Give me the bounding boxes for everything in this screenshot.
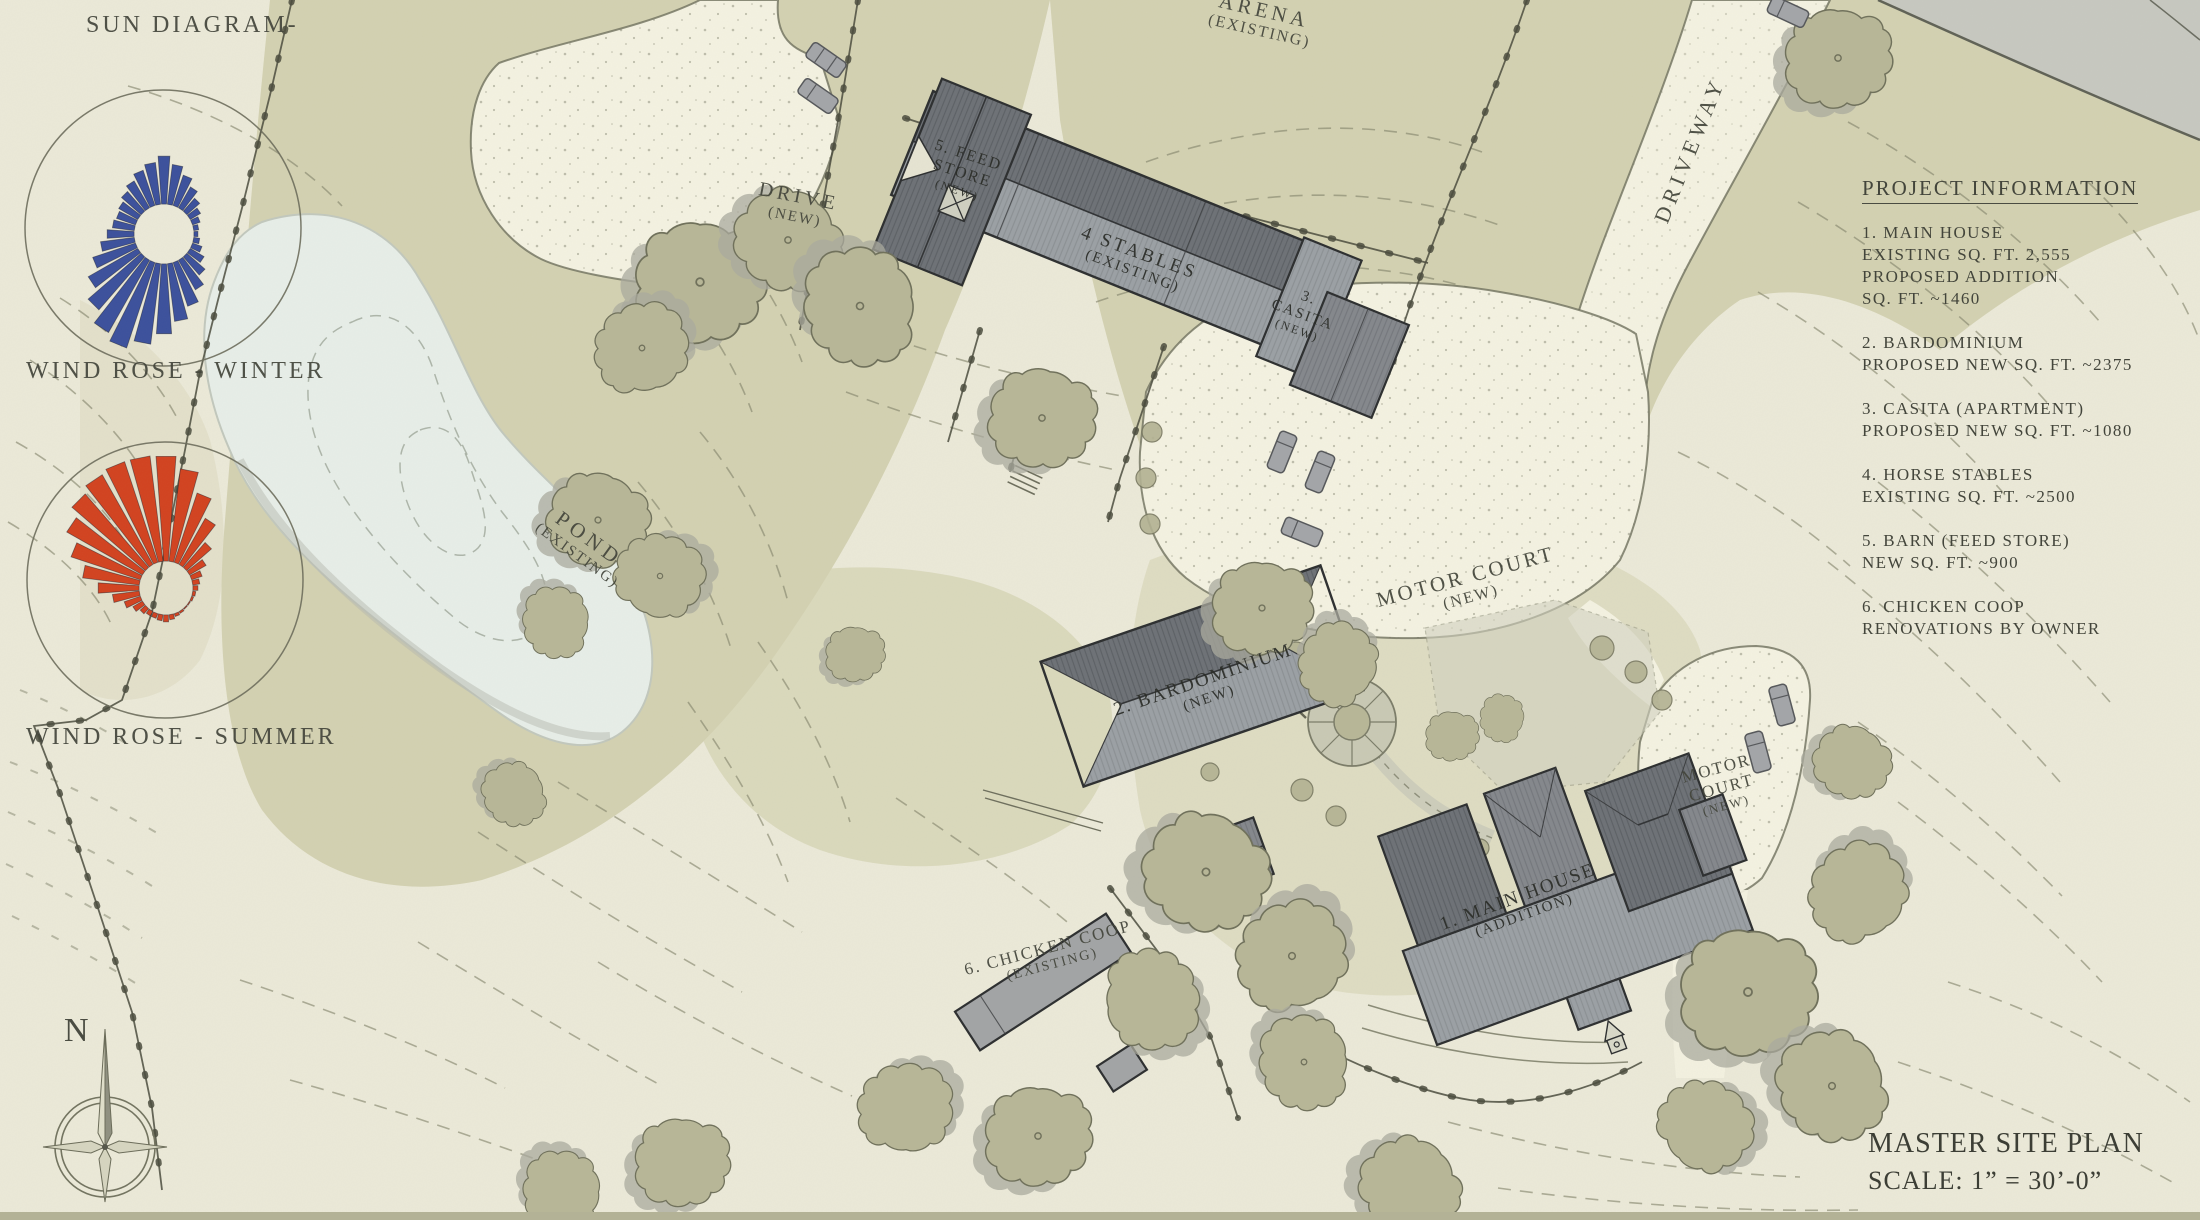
project-info-item-chicken-coop: 6. CHICKEN COOP RENOVATIONS BY OWNER: [1862, 596, 2192, 640]
project-info-heading: PROJECT INFORMATION: [1862, 176, 2138, 204]
wind-rose-summer-label: WIND ROSE - SUMMER: [26, 724, 337, 751]
project-info-item-casita: 3. CASITA (APARTMENT) PROPOSED NEW SQ. F…: [1862, 398, 2192, 442]
wind-rose-winter-label: WIND ROSE - WINTER: [26, 358, 326, 385]
title-block: MASTER SITE PLAN SCALE: 1” = 30’-0”: [1868, 1128, 2144, 1196]
project-info-item-stables: 4. HORSE STABLES EXISTING SQ. FT. ~2500: [1862, 464, 2192, 508]
master-site-plan: SUN DIAGRAM- WIND ROSE - WINTER WIND ROS…: [0, 0, 2200, 1220]
page-title: MASTER SITE PLAN: [1868, 1128, 2144, 1160]
page-scale: SCALE: 1” = 30’-0”: [1868, 1166, 2144, 1196]
project-info-panel: PROJECT INFORMATION 1. MAIN HOUSE EXISTI…: [1862, 176, 2192, 662]
project-info-item-barn: 5. BARN (FEED STORE) NEW SQ. FT. ~900: [1862, 530, 2192, 574]
project-info-item-bardominium: 2. BARDOMINIUM PROPOSED NEW SQ. FT. ~237…: [1862, 332, 2192, 376]
project-info-item-main-house: 1. MAIN HOUSE EXISTING SQ. FT. 2,555 PRO…: [1862, 222, 2192, 310]
sun-diagram-label: SUN DIAGRAM-: [86, 12, 299, 39]
north-label: N: [64, 1012, 89, 1050]
